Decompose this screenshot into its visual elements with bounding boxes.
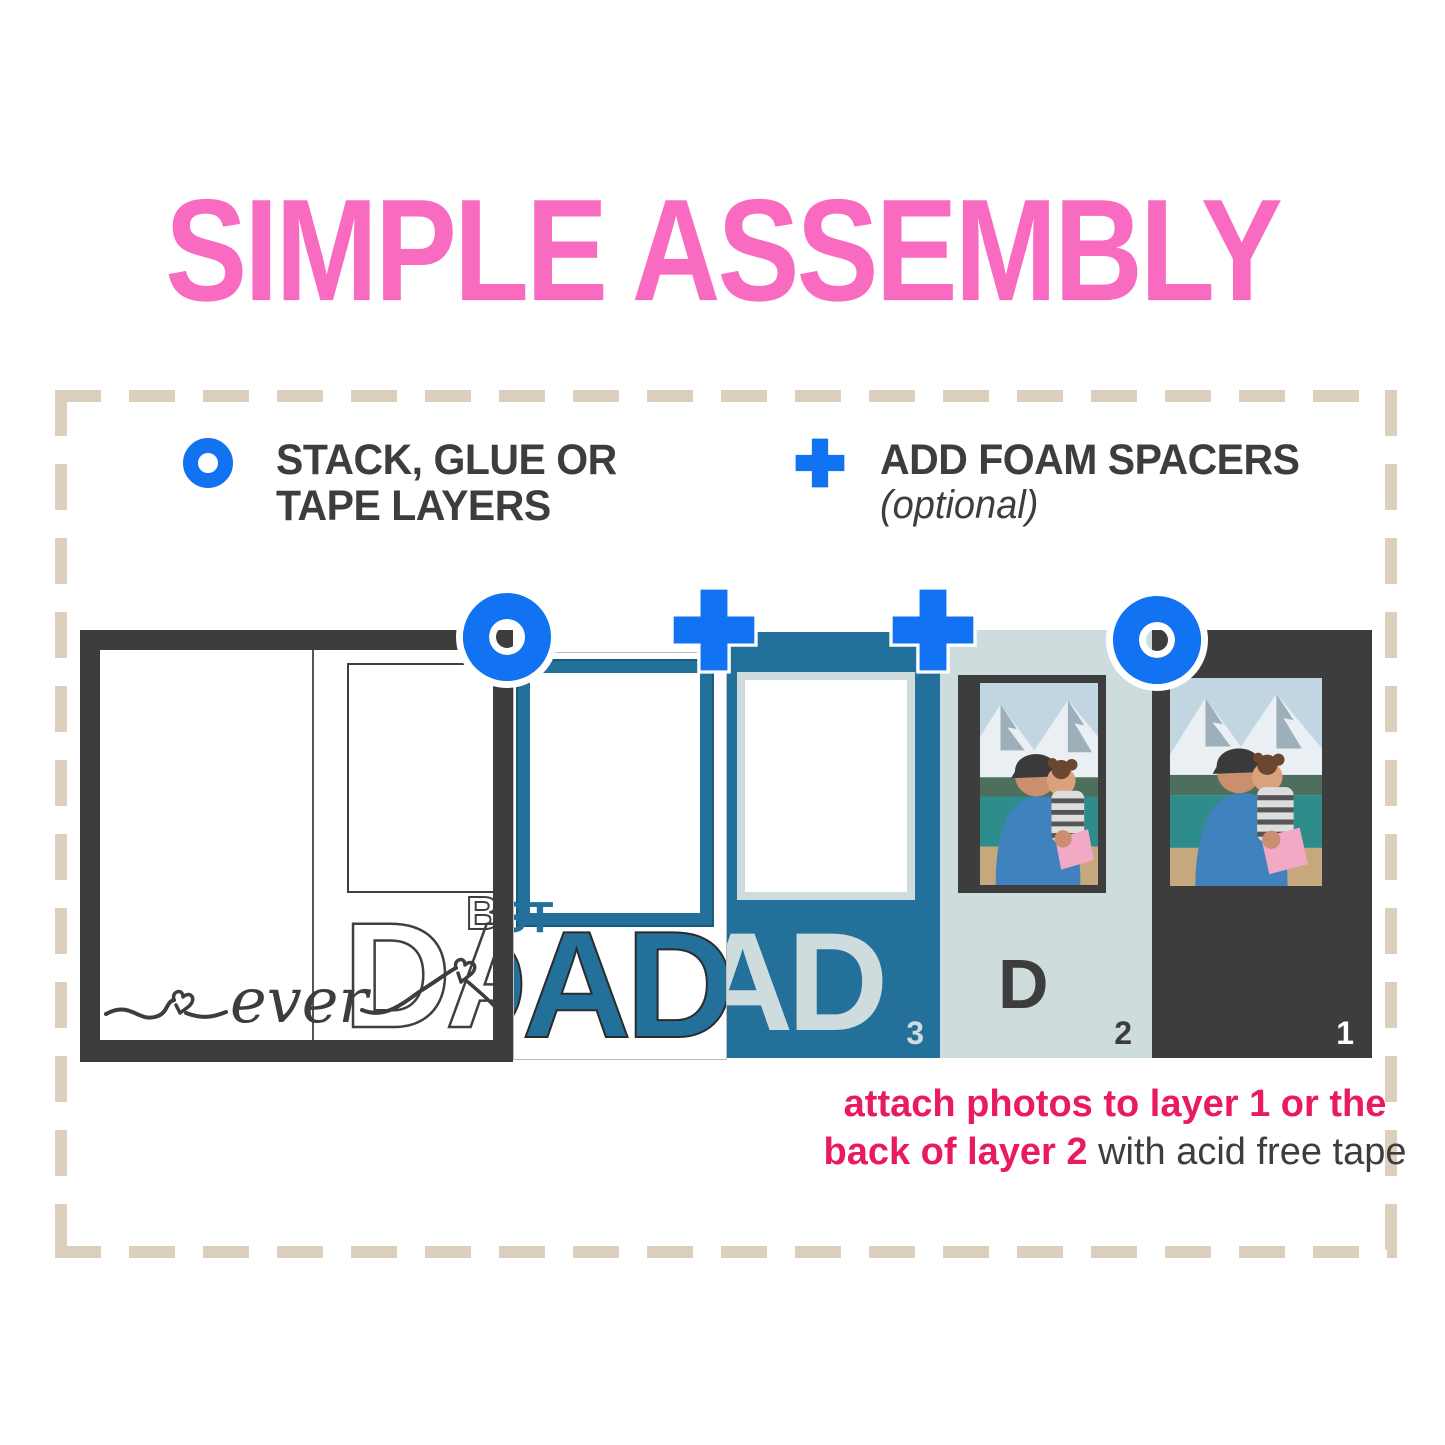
photo-dad-daughter: [1170, 678, 1322, 886]
ever-word: ever: [230, 964, 371, 1037]
layer-number-1: 1: [1336, 1015, 1354, 1052]
plus-icon: [885, 582, 981, 678]
photo-frame: [958, 675, 1106, 893]
light-dad-word: DAD: [727, 912, 882, 1052]
ever-script: ever: [104, 928, 493, 1038]
plus-icon: [791, 434, 849, 492]
legend-stack-label: STACK, GLUE OR TAPE LAYERS: [276, 436, 617, 528]
teal-photo-mat: [518, 661, 712, 925]
footer-line2-bold: back of layer 2: [823, 1131, 1087, 1173]
photo-cutout-outline: [347, 663, 493, 893]
simple-assembly-graphic: SIMPLE ASSEMBLY STACK, GLUE OR TAPE LAYE…: [0, 0, 1445, 1445]
dashed-border-top: [55, 390, 1397, 402]
layer-2-card: D 2: [940, 630, 1152, 1058]
teal-dad-word: DAD: [513, 909, 727, 1060]
footer-line2-regular: with acid free tape: [1088, 1131, 1407, 1173]
ring-icon: [463, 593, 551, 681]
dashed-border-left: [55, 390, 67, 1258]
legend-stack-line1: STACK, GLUE OR: [276, 436, 617, 482]
ring-icon: [183, 438, 233, 488]
photo-dad-daughter: [980, 683, 1098, 885]
photo-window: [737, 672, 915, 900]
legend-foam-sub: (optional): [880, 482, 1299, 528]
footer-note: attach photos to layer 1 or the back of …: [790, 1080, 1440, 1176]
ring-icon: [1113, 596, 1201, 684]
footer-line1: attach photos to layer 1 or the: [790, 1080, 1440, 1128]
dashed-border-bottom: [55, 1246, 1397, 1258]
layer-number-2: 2: [1114, 1015, 1132, 1052]
plus-icon: [666, 582, 762, 678]
assembled-card: BEST DAD ever: [80, 630, 513, 1062]
legend-stack-line2: TAPE LAYERS: [276, 482, 617, 528]
footer-line2: back of layer 2 with acid free tape: [790, 1128, 1440, 1176]
layer-4-card: BEST DAD: [513, 652, 727, 1060]
layer-number-3: 3: [906, 1015, 924, 1052]
page-title: SIMPLE ASSEMBLY: [165, 168, 1280, 334]
assembled-card-face: BEST DAD ever: [100, 650, 493, 1040]
legend-foam-line1: ADD FOAM SPACERS: [880, 436, 1299, 482]
layer-3-card: DAD 3: [727, 632, 940, 1058]
dark-d-letter: D: [998, 944, 1049, 1024]
layer-1-card: 1: [1152, 630, 1372, 1058]
legend-foam-label: ADD FOAM SPACERS (optional): [880, 436, 1299, 528]
